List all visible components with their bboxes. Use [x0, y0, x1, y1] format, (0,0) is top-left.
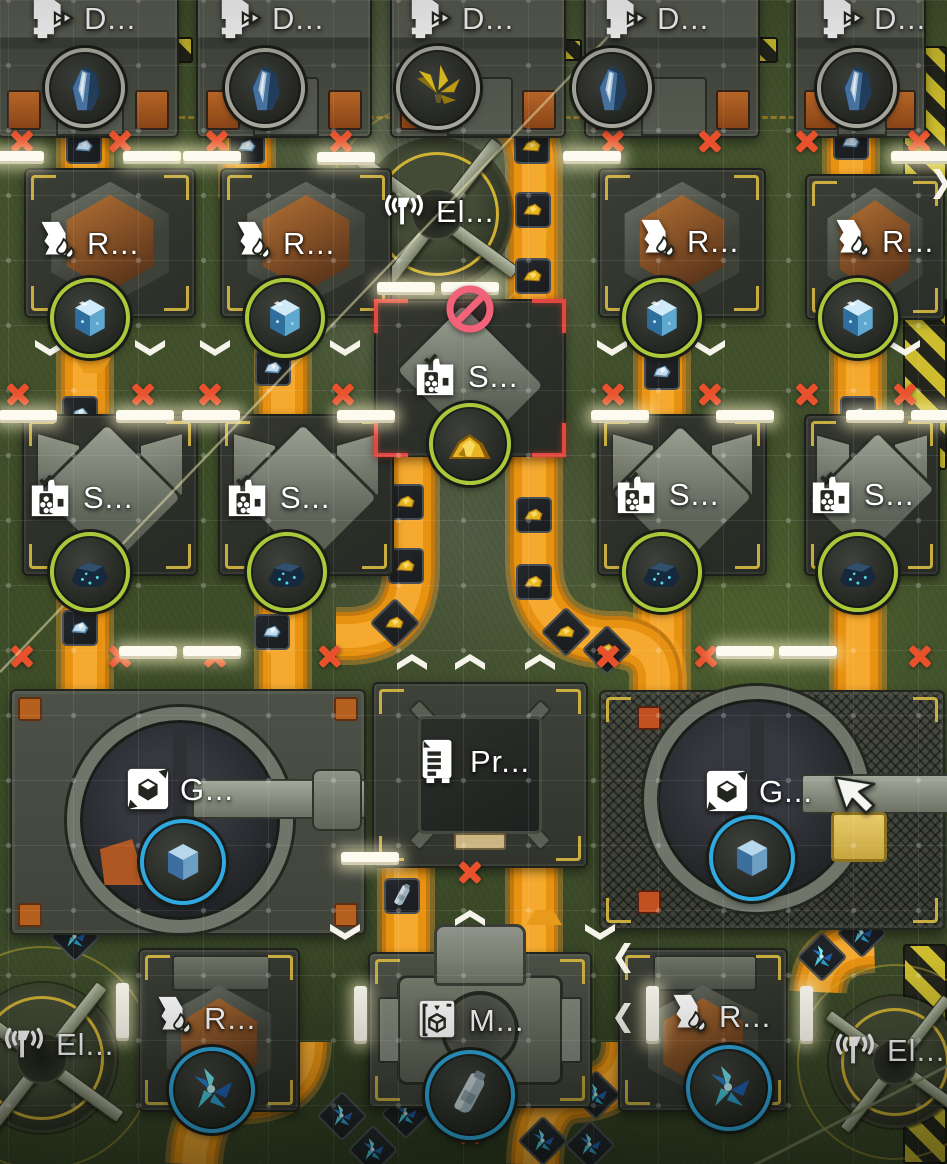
refinery-flame-icon: [32, 220, 78, 266]
factory-map: D...D...D...D...D...El...El...El...R...R…: [0, 0, 947, 1164]
corner-bracket: [227, 175, 252, 200]
io-port-light: [377, 282, 435, 295]
io-port-light: [0, 410, 57, 423]
corner-bracket: [268, 955, 293, 980]
machine-label-text: D...: [462, 3, 514, 34]
flow-arrow-up-icon: [397, 654, 427, 670]
machine-label-text: S...: [83, 482, 134, 513]
platform-corner: [334, 697, 358, 721]
blocked-port-x-icon: [328, 128, 354, 154]
gold-ore-item: [545, 611, 587, 653]
drill-label[interactable]: D...: [217, 0, 324, 41]
io-port-light: [800, 986, 813, 1044]
refined-cube-badge[interactable]: [140, 819, 226, 905]
corner-bracket: [560, 959, 585, 984]
machine-label-text: M...: [469, 1005, 525, 1036]
crystal-item: [352, 1129, 394, 1164]
machine-label-text: D...: [84, 3, 136, 34]
crystal-item: [801, 936, 843, 978]
crystal-shard-badge[interactable]: [686, 1045, 772, 1131]
corner-bracket: [164, 286, 189, 311]
tower-ore-badge[interactable]: [45, 48, 125, 128]
crystal-shard-badge[interactable]: [169, 1047, 255, 1133]
corner-bracket: [556, 689, 581, 714]
gold-ore-item: [512, 189, 554, 231]
machine-label-text: D...: [657, 3, 709, 34]
machine-label-text: R...: [882, 226, 934, 257]
smelter-icon: [225, 474, 271, 520]
belt-direction-marker: [526, 895, 562, 925]
drill-label[interactable]: D...: [819, 0, 926, 41]
canister-badge[interactable]: [425, 1050, 515, 1140]
blocked-port-x-icon: [9, 643, 35, 669]
corner-bracket: [556, 836, 581, 861]
crystal-item: [522, 1120, 564, 1162]
mouse-cursor: [830, 768, 886, 824]
flow-arrow-up-icon: [525, 654, 555, 670]
blue-cube-ore-badge[interactable]: [818, 278, 898, 358]
gold-ore-item: [513, 494, 555, 536]
corner-bracket: [604, 421, 629, 446]
io-port-light: [563, 151, 621, 164]
blocked-port-x-icon: [330, 381, 356, 407]
smelter-label[interactable]: S...: [28, 474, 134, 520]
machine-label-text: G...: [759, 776, 813, 807]
blue-ore-item: [251, 611, 293, 653]
blue-cube-ore-badge[interactable]: [50, 278, 130, 358]
selection-bracket: [532, 299, 566, 333]
io-port-light: [337, 410, 395, 423]
io-port-light: [116, 983, 129, 1041]
corner-bracket: [225, 544, 250, 569]
blocked-port-x-icon: [794, 381, 820, 407]
blue-cube-ore-badge[interactable]: [245, 278, 325, 358]
refinery-label[interactable]: R...: [664, 993, 771, 1039]
machine-cap: [653, 955, 757, 991]
io-port-light: [317, 152, 375, 165]
refinery-label[interactable]: R...: [827, 218, 934, 264]
blocked-port-x-icon: [907, 643, 933, 669]
flow-arrow-down-icon: [200, 340, 230, 356]
corner-bracket: [913, 181, 938, 206]
smelter-icon: [413, 353, 459, 399]
raw-rock-ore-badge[interactable]: [247, 532, 327, 612]
machine-label-text: El...: [436, 196, 494, 227]
plant-fiber-badge[interactable]: [396, 46, 480, 130]
refinery-flame-icon: [228, 220, 274, 266]
corner-bracket: [756, 955, 781, 980]
drill-vent: [522, 90, 556, 130]
io-port-light: [911, 410, 947, 423]
refinery-flame-icon: [149, 995, 195, 1041]
refined-cube-badge[interactable]: [709, 815, 795, 901]
corner-bracket: [145, 955, 170, 980]
corner-bracket: [225, 421, 250, 446]
smelter-label[interactable]: S...: [614, 471, 720, 517]
corner-bracket: [625, 1080, 650, 1105]
io-port-light: [779, 646, 837, 659]
corner-bracket: [145, 1080, 170, 1105]
machine-label-text: S...: [280, 482, 331, 513]
molder-flange: [378, 997, 400, 1063]
machine-label-text: S...: [468, 361, 519, 392]
blocked-port-x-icon: [794, 128, 820, 154]
flow-arrow-up-icon: [455, 654, 485, 670]
power-pole-label[interactable]: El...: [832, 1027, 945, 1073]
io-port-light: [119, 646, 177, 659]
corner-bracket: [734, 175, 759, 200]
raw-rock-ore-badge[interactable]: [622, 532, 702, 612]
power-pole-label[interactable]: El...: [1, 1021, 114, 1067]
corner-bracket: [29, 421, 54, 446]
corner-bracket: [913, 288, 938, 313]
gold-ore-badge[interactable]: [429, 403, 511, 485]
canister-item: [381, 875, 423, 917]
drill-icon: [602, 0, 648, 41]
io-port-light: [182, 410, 240, 423]
blocked-port-x-icon: [130, 381, 156, 407]
smelter-label[interactable]: S...: [413, 353, 519, 399]
molder-icon: [414, 997, 460, 1043]
machine-label-text: El...: [56, 1029, 114, 1060]
io-port-light: [646, 986, 659, 1044]
smelter-icon: [614, 471, 660, 517]
antenna-icon: [381, 188, 427, 234]
refinery-flame-icon: [664, 993, 710, 1039]
antenna-icon: [1, 1021, 47, 1067]
corner-bracket: [606, 697, 631, 722]
corner-bracket: [606, 898, 631, 923]
machine-label-text: R...: [204, 1003, 256, 1034]
refinery-label[interactable]: R...: [32, 220, 139, 266]
molder-label[interactable]: M...: [414, 997, 525, 1043]
platform-corner: [18, 697, 42, 721]
tower-ore-badge[interactable]: [225, 48, 305, 128]
selection-bracket: [374, 423, 408, 457]
blue-ore-item: [59, 607, 101, 649]
drill-label[interactable]: D...: [602, 0, 709, 41]
gold-ore-item: [374, 602, 416, 644]
flow-arrow-down-icon: [330, 340, 360, 356]
corner-bracket: [908, 544, 933, 569]
io-port-light: [716, 646, 774, 659]
corner-bracket: [166, 544, 191, 569]
io-port-light: [183, 646, 241, 659]
drill-label[interactable]: D...: [407, 0, 514, 41]
corner-bracket: [913, 697, 938, 722]
machine-label-text: D...: [874, 3, 926, 34]
antenna-icon: [832, 1027, 878, 1073]
corner-bracket: [735, 544, 760, 569]
corner-bracket: [375, 1076, 400, 1101]
corner-bracket: [375, 959, 400, 984]
machine-cap: [172, 955, 271, 991]
flow-arrow-down-icon: [135, 340, 165, 356]
power-pole-label[interactable]: El...: [381, 188, 494, 234]
drill-vent: [716, 90, 750, 130]
drill-icon: [29, 0, 75, 41]
drill-vent: [328, 90, 362, 130]
corner-bracket: [812, 181, 837, 206]
io-port-light: [591, 410, 649, 423]
smelter-label[interactable]: S...: [809, 471, 915, 517]
blocked-port-x-icon: [600, 381, 626, 407]
corner-bracket: [913, 898, 938, 923]
refinery-label[interactable]: R...: [228, 220, 335, 266]
corner-bracket: [908, 421, 933, 446]
drill-icon: [217, 0, 263, 41]
grinder-arm-head: [312, 769, 362, 831]
loading-ramp[interactable]: [434, 924, 526, 986]
prohibited-status-icon: [443, 282, 497, 336]
io-port-light: [354, 986, 367, 1044]
raw-rock-ore-badge[interactable]: [818, 532, 898, 612]
io-port-light: [846, 410, 904, 423]
corner-bracket: [734, 286, 759, 311]
platform-corner: [18, 903, 42, 927]
corner-bracket: [164, 175, 189, 200]
flow-arrow-down-icon: [597, 340, 627, 356]
corner-bracket: [31, 175, 56, 200]
blue-cube-ore-badge[interactable]: [622, 278, 702, 358]
smelter-label[interactable]: S...: [225, 474, 331, 520]
machine-label-text: El...: [887, 1035, 945, 1066]
refinery-label[interactable]: R...: [632, 218, 739, 264]
machine-label-text: D...: [272, 3, 324, 34]
corner-bracket: [379, 689, 404, 714]
belt-direction-marker: [75, 358, 111, 388]
drill-vent: [7, 90, 41, 130]
gold-ore-item: [512, 255, 554, 297]
blocked-port-x-icon: [5, 381, 31, 407]
corner-bracket: [605, 175, 630, 200]
machine-label-text: R...: [687, 226, 739, 257]
grinder-label[interactable]: G...: [704, 768, 813, 814]
tower-ore-badge[interactable]: [817, 48, 897, 128]
corner-bracket: [625, 955, 650, 980]
grinder-label[interactable]: G...: [125, 766, 234, 812]
machine-label-text: S...: [669, 479, 720, 510]
blocked-port-x-icon: [697, 128, 723, 154]
machine-label-text: S...: [864, 479, 915, 510]
corner-bracket: [362, 544, 387, 569]
refinery-flame-icon: [632, 218, 678, 264]
compress-cube-icon: [125, 766, 171, 812]
flow-arrow-down-icon: [695, 340, 725, 356]
corner-bracket: [268, 1080, 293, 1105]
corner-bracket: [166, 421, 191, 446]
compress-cube-icon: [704, 768, 750, 814]
blocked-port-x-icon: [197, 381, 223, 407]
blocked-port-x-icon: [892, 381, 918, 407]
machine-label-text: R...: [719, 1001, 771, 1032]
vent-light: [637, 890, 661, 914]
selection-bracket: [374, 299, 408, 333]
corner-bracket: [735, 421, 760, 446]
press-tray: [454, 833, 506, 850]
refinery-flame-icon: [827, 218, 873, 264]
blocked-port-x-icon: [317, 643, 343, 669]
raw-rock-ore-badge[interactable]: [50, 532, 130, 612]
refinery-label[interactable]: R...: [149, 995, 256, 1041]
smelter-icon: [28, 474, 74, 520]
selection-bracket: [532, 423, 566, 457]
corner-bracket: [560, 1076, 585, 1101]
tower-ore-badge[interactable]: [572, 48, 652, 128]
press-label[interactable]: Pr...: [415, 738, 530, 784]
drill-icon: [819, 0, 865, 41]
drill-vent: [135, 90, 169, 130]
machine-label-text: R...: [283, 228, 335, 259]
machine-label-text: G...: [180, 774, 234, 805]
drill-icon: [407, 0, 453, 41]
blocked-port-x-icon: [457, 859, 483, 885]
io-port-light: [716, 410, 774, 423]
io-port-light: [891, 151, 947, 164]
platform-corner: [334, 903, 358, 927]
drill-label[interactable]: D...: [29, 0, 136, 41]
smelter-icon: [809, 471, 855, 517]
blocked-port-x-icon: [595, 643, 621, 669]
press-icon: [415, 738, 461, 784]
gold-ore-item: [513, 561, 555, 603]
io-port-light: [341, 852, 399, 865]
machine-label-text: Pr...: [470, 746, 530, 777]
io-port-light: [0, 151, 44, 164]
io-port-light: [123, 151, 181, 164]
blocked-port-x-icon: [697, 381, 723, 407]
io-port-light: [183, 151, 241, 164]
machine-label-text: R...: [87, 228, 139, 259]
io-port-light: [116, 410, 174, 423]
vent-light: [637, 706, 661, 730]
molder-flange: [560, 997, 582, 1063]
crystal-item: [569, 1124, 611, 1164]
corner-bracket: [811, 421, 836, 446]
